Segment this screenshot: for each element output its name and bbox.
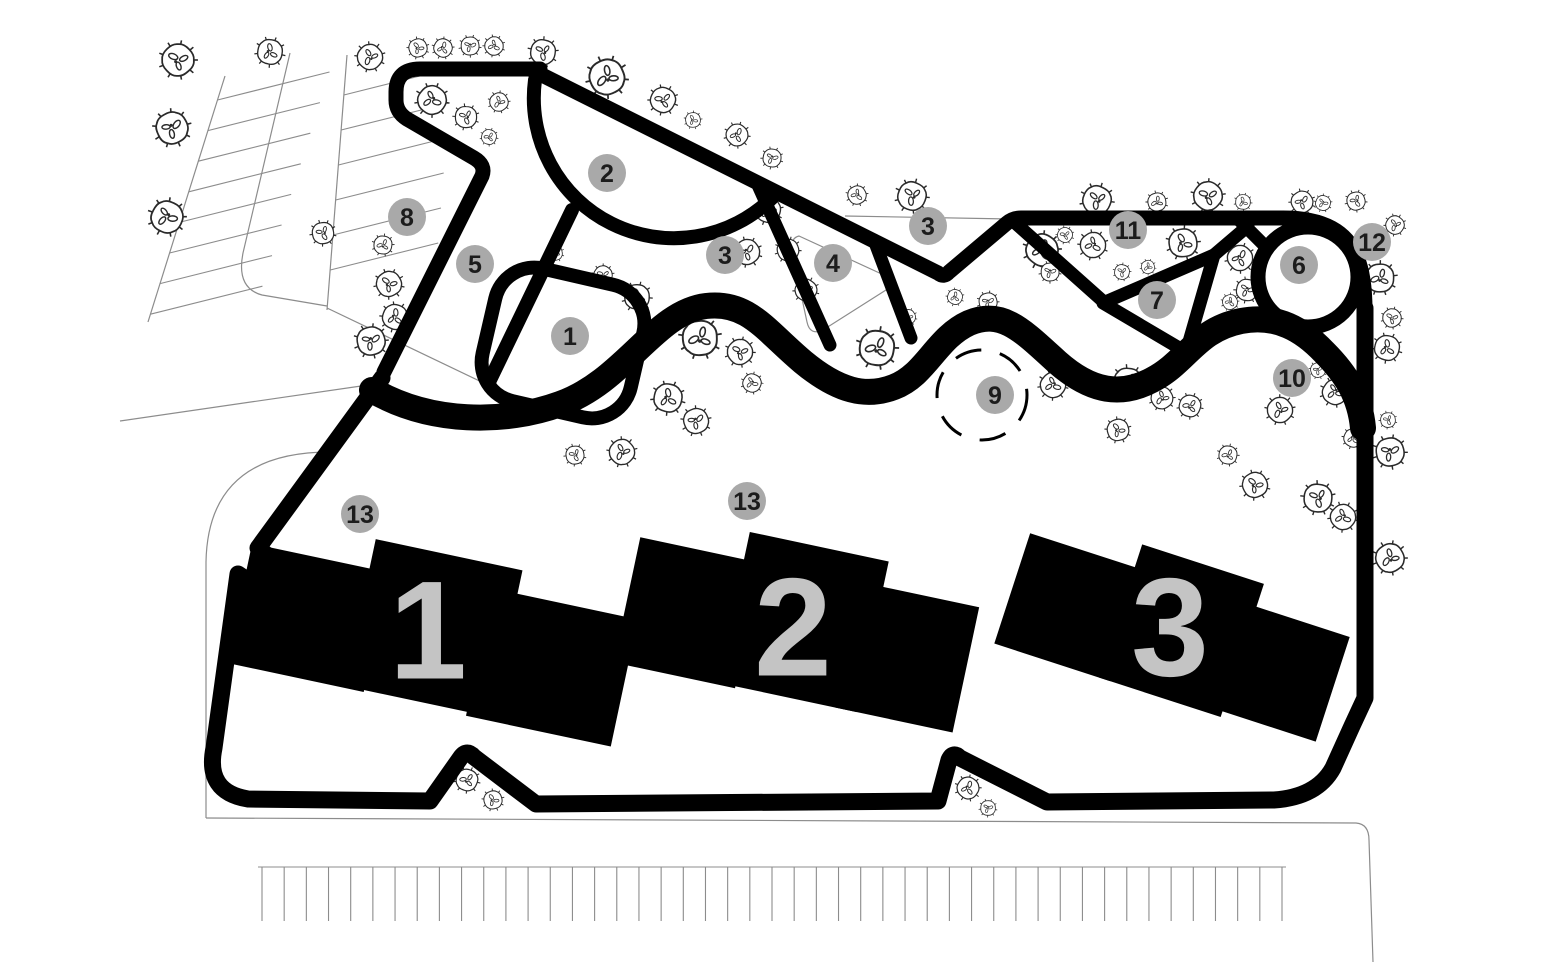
marker-number-label: 1 [563,323,577,351]
tree-icon [249,31,292,74]
building-number-label: 1 [389,552,467,709]
area-marker-2: 2 [588,154,626,192]
tree-icon [1189,176,1228,215]
tree-icon [454,30,486,62]
tree-icon [487,89,512,114]
parking-stall-line [160,256,272,284]
marker-number-label: 5 [468,251,482,279]
parking-stall-line [198,133,310,161]
building-number-label: 3 [1131,549,1209,706]
marker-number-label: 12 [1358,229,1386,257]
tree-icon [1310,191,1335,216]
marker-number-label: 3 [718,242,732,270]
area-marker-13: 13 [341,495,379,533]
area-marker-3: 3 [909,207,947,245]
area-marker-6: 6 [1280,246,1318,284]
tree-icon [676,402,715,441]
tree-icon [975,795,1001,821]
area-marker-7: 7 [1138,281,1176,319]
tree-icon [1101,413,1136,448]
tree-icon [952,773,983,804]
tree-icon [372,266,408,302]
marker-number-label: 10 [1278,365,1306,393]
parking-stall-line [336,173,444,200]
tree-icon [1212,439,1244,471]
tree-icon [1109,259,1135,285]
area-marker-1: 1 [551,317,589,355]
parking-left-boundary-line [148,76,225,322]
tree-icon [429,35,457,62]
marker-number-label: 2 [600,160,614,188]
building-number-label: 2 [754,549,832,706]
tree-icon [756,142,788,174]
area-marker-12: 12 [1353,223,1391,261]
tree-icon [1076,229,1108,262]
tree-icon [606,435,639,467]
marker-number-label: 9 [988,382,1002,410]
tree-icon [1375,407,1401,433]
tree-icon [353,40,387,73]
marker-number-label: 8 [400,204,414,232]
tree-icon [482,34,505,57]
parking-stall-line [189,164,301,192]
area-marker-8: 8 [388,198,426,236]
building-layer: 123 [226,510,1357,747]
bottom-parking-row [258,867,1286,921]
site-plan-page: 123 12334567891011121313 [0,0,1560,964]
tree-icon [447,98,485,136]
parking-stall-line [179,194,291,222]
parking-stall-lines [150,68,451,314]
tree-icon [681,107,706,133]
marker-number-label: 6 [1292,252,1306,280]
parking-stall-line [170,225,282,253]
marker-number-label: 3 [921,213,935,241]
tree-icon [477,124,502,149]
parking-road-right-edge [327,55,347,310]
marker-number-label: 7 [1150,287,1164,315]
tree-icon [723,121,752,149]
parking-stall-line [217,72,329,100]
tree-icon [1380,306,1404,330]
marker-number-label: 4 [826,250,840,278]
tree-icon [644,80,683,120]
tree-icon [1237,466,1274,504]
tree-icon [1341,186,1371,216]
marker-number-label: 11 [1115,217,1142,245]
area-marker-5: 5 [456,245,494,283]
tree-icon [559,439,590,470]
area-marker-9: 9 [976,376,1014,414]
building-block [466,589,638,747]
marker-number-label: 13 [733,488,761,516]
tree-icon [847,317,908,378]
tree-icon [367,229,399,261]
tree-icon [943,285,967,309]
tree-icon [141,192,191,242]
tree-icon [1370,537,1411,577]
tree-icon [404,33,433,62]
area-marker-3: 3 [706,236,744,274]
tree-icon [843,181,870,208]
property-line-west [120,385,368,421]
tree-icon [1264,394,1296,425]
tree-icon [411,80,451,121]
marker-number-label: 13 [346,501,374,529]
parking-stall-line [208,103,320,131]
parking-stall-line [150,286,262,314]
parking-stall-line [338,138,446,165]
tree-icon [148,105,196,153]
site-plan-drawing: 123 12334567891011121313 [0,0,1560,964]
tree-icon [304,214,341,251]
tree-icon [1172,388,1208,424]
tree-icon [159,40,198,79]
area-marker-11: 11 [1109,211,1147,249]
tree-icon [725,336,757,368]
area-marker-10: 10 [1273,359,1311,397]
tree-icon [737,369,766,398]
area-marker-4: 4 [814,244,852,282]
area-marker-13: 13 [728,482,766,520]
property-line-south [206,818,1373,962]
